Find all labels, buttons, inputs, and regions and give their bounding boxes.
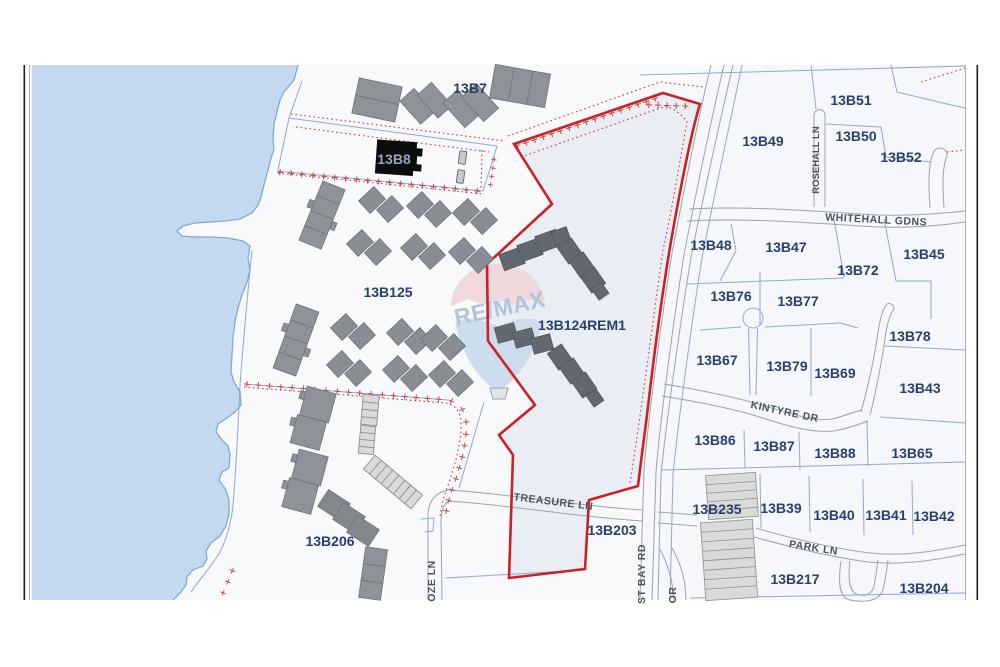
svg-text:13B87: 13B87 xyxy=(753,438,794,454)
svg-text:13B7: 13B7 xyxy=(453,80,487,96)
svg-text:ROSEHALL LN: ROSEHALL LN xyxy=(811,126,822,194)
svg-text:OR: OR xyxy=(667,587,679,604)
svg-text:13B40: 13B40 xyxy=(813,507,854,523)
svg-text:13B8: 13B8 xyxy=(377,151,411,167)
svg-text:13B77: 13B77 xyxy=(777,293,818,309)
svg-text:13B124REM1: 13B124REM1 xyxy=(538,317,626,333)
svg-text:13B49: 13B49 xyxy=(742,133,783,149)
svg-text:13B203: 13B203 xyxy=(587,522,636,538)
svg-text:13B125: 13B125 xyxy=(363,284,412,300)
svg-text:13B47: 13B47 xyxy=(765,239,806,255)
svg-text:13B235: 13B235 xyxy=(692,501,741,517)
svg-text:13B39: 13B39 xyxy=(760,500,801,516)
svg-text:13B72: 13B72 xyxy=(837,262,878,278)
svg-text:13B78: 13B78 xyxy=(889,328,930,344)
svg-text:13B206: 13B206 xyxy=(305,533,354,549)
svg-text:13B41: 13B41 xyxy=(865,507,906,523)
svg-text:13B43: 13B43 xyxy=(899,380,940,396)
svg-text:13B48: 13B48 xyxy=(690,237,731,253)
svg-text:OZE LN: OZE LN xyxy=(426,560,438,602)
svg-text:13B50: 13B50 xyxy=(835,128,876,144)
svg-text:13B65: 13B65 xyxy=(891,445,932,461)
svg-text:13B217: 13B217 xyxy=(770,571,819,587)
svg-text:13B76: 13B76 xyxy=(710,288,751,304)
svg-text:ST BAY RD: ST BAY RD xyxy=(636,544,648,604)
svg-text:13B69: 13B69 xyxy=(814,365,855,381)
svg-text:13B42: 13B42 xyxy=(913,508,954,524)
svg-text:13B52: 13B52 xyxy=(880,149,921,165)
svg-text:13B51: 13B51 xyxy=(830,92,871,108)
svg-text:13B88: 13B88 xyxy=(814,445,855,461)
svg-text:13B67: 13B67 xyxy=(696,352,737,368)
svg-text:13B204: 13B204 xyxy=(899,580,948,596)
svg-text:13B79: 13B79 xyxy=(766,358,807,374)
svg-text:13B45: 13B45 xyxy=(903,246,944,262)
svg-text:13B86: 13B86 xyxy=(694,432,735,448)
